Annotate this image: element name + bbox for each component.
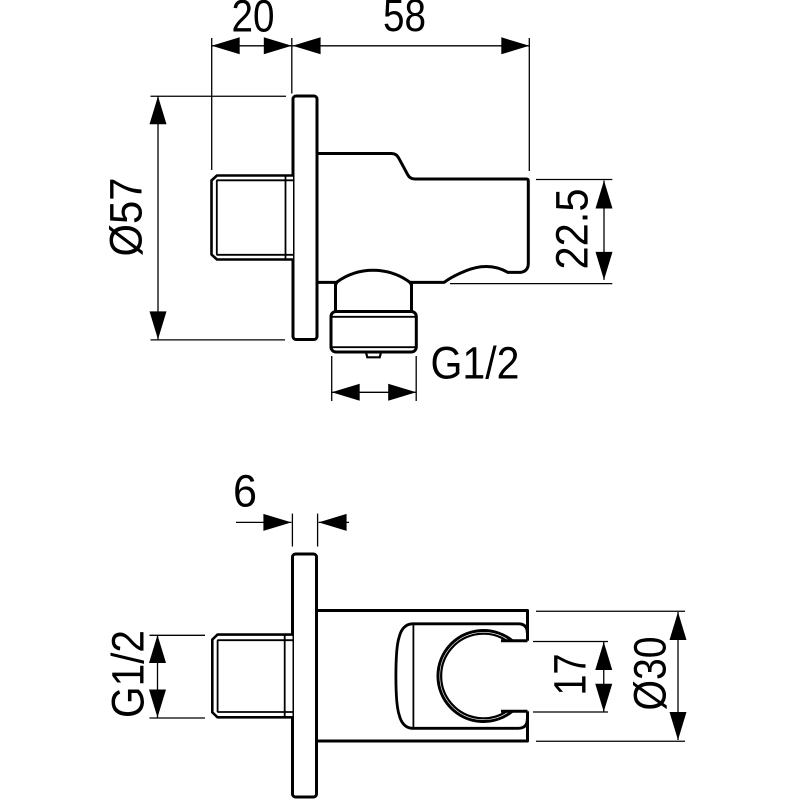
- svg-text:Ø30: Ø30: [625, 637, 676, 711]
- svg-text:6: 6: [233, 466, 257, 517]
- svg-text:G1/2: G1/2: [102, 630, 153, 718]
- svg-text:Ø57: Ø57: [101, 178, 152, 257]
- svg-text:22.5: 22.5: [547, 189, 598, 270]
- svg-text:58: 58: [383, 0, 426, 41]
- svg-text:17: 17: [545, 654, 596, 696]
- svg-text:G1/2: G1/2: [431, 338, 520, 389]
- svg-text:20: 20: [232, 0, 275, 42]
